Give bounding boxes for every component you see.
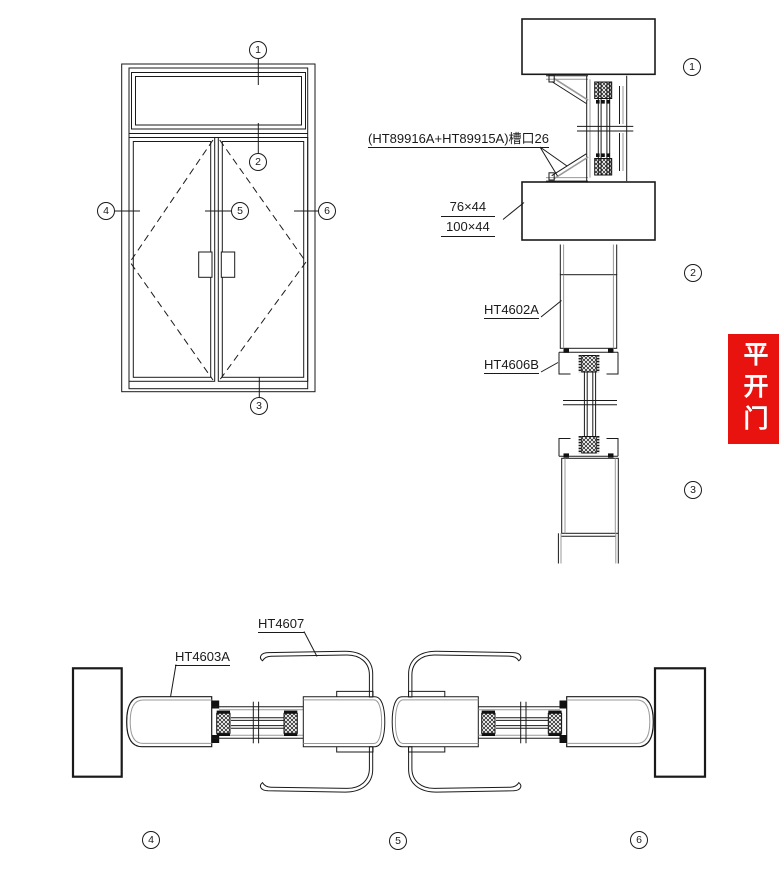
callout-4-elevation: 4	[97, 202, 115, 220]
door-handle-right	[221, 252, 234, 277]
groove-label: (HT89916A+HT89915A)槽口26	[368, 132, 549, 148]
callout-1-section: 1	[683, 58, 701, 76]
vertical-section-detail-2-3	[541, 245, 618, 564]
astragal-flap-top-left	[260, 651, 372, 697]
callout-5-section: 5	[389, 832, 407, 850]
leaf-top-profile-label: HT4606B	[484, 358, 539, 374]
astragal-flap-bottom-left	[260, 747, 372, 792]
groove-label-text: (HT89916A+HT89915A)槽口26	[368, 132, 549, 148]
callout-2-elevation: 2	[249, 153, 267, 171]
jamb-profile-right	[567, 697, 654, 747]
door-elevation-drawing	[115, 59, 319, 397]
wall-left	[73, 668, 122, 776]
category-banner: 平开门	[728, 334, 779, 444]
meeting-stile-left	[303, 697, 385, 747]
jamb-profile-label: HT4603A	[175, 650, 230, 666]
dimension-lower: 100×44	[441, 217, 495, 237]
astragal-profile-label: HT4607	[258, 617, 304, 633]
vertical-section-detail-1	[503, 19, 655, 240]
callout-5-elevation: 5	[231, 202, 249, 220]
glazing-tape-hatch	[595, 159, 612, 176]
callout-3-elevation: 3	[250, 397, 268, 415]
jamb-profile-left	[127, 697, 212, 747]
callout-6-section: 6	[630, 831, 648, 849]
callout-4-section: 4	[142, 831, 160, 849]
callout-2-section: 2	[684, 264, 702, 282]
head-profile-label: HT4602A	[484, 303, 539, 319]
frame-dimension-label: 76×44 100×44	[441, 199, 495, 237]
dimension-upper: 76×44	[441, 199, 495, 217]
category-banner-text: 平开门	[741, 341, 766, 437]
callout-3-section: 3	[684, 481, 702, 499]
door-handle-left	[199, 252, 212, 277]
callout-1-elevation: 1	[249, 41, 267, 59]
wall-right	[655, 668, 705, 776]
astragal-flap-top-right	[409, 651, 521, 697]
glazing-tape-hatch	[595, 82, 612, 99]
callout-6-elevation: 6	[318, 202, 336, 220]
astragal-flap-bottom-right	[409, 747, 521, 792]
drawing-canvas: (HT89916A+HT89915A)槽口26 76×44 100×44 HT4…	[0, 0, 779, 869]
meeting-stile-right	[392, 697, 478, 747]
horizontal-section-detail	[73, 632, 705, 793]
